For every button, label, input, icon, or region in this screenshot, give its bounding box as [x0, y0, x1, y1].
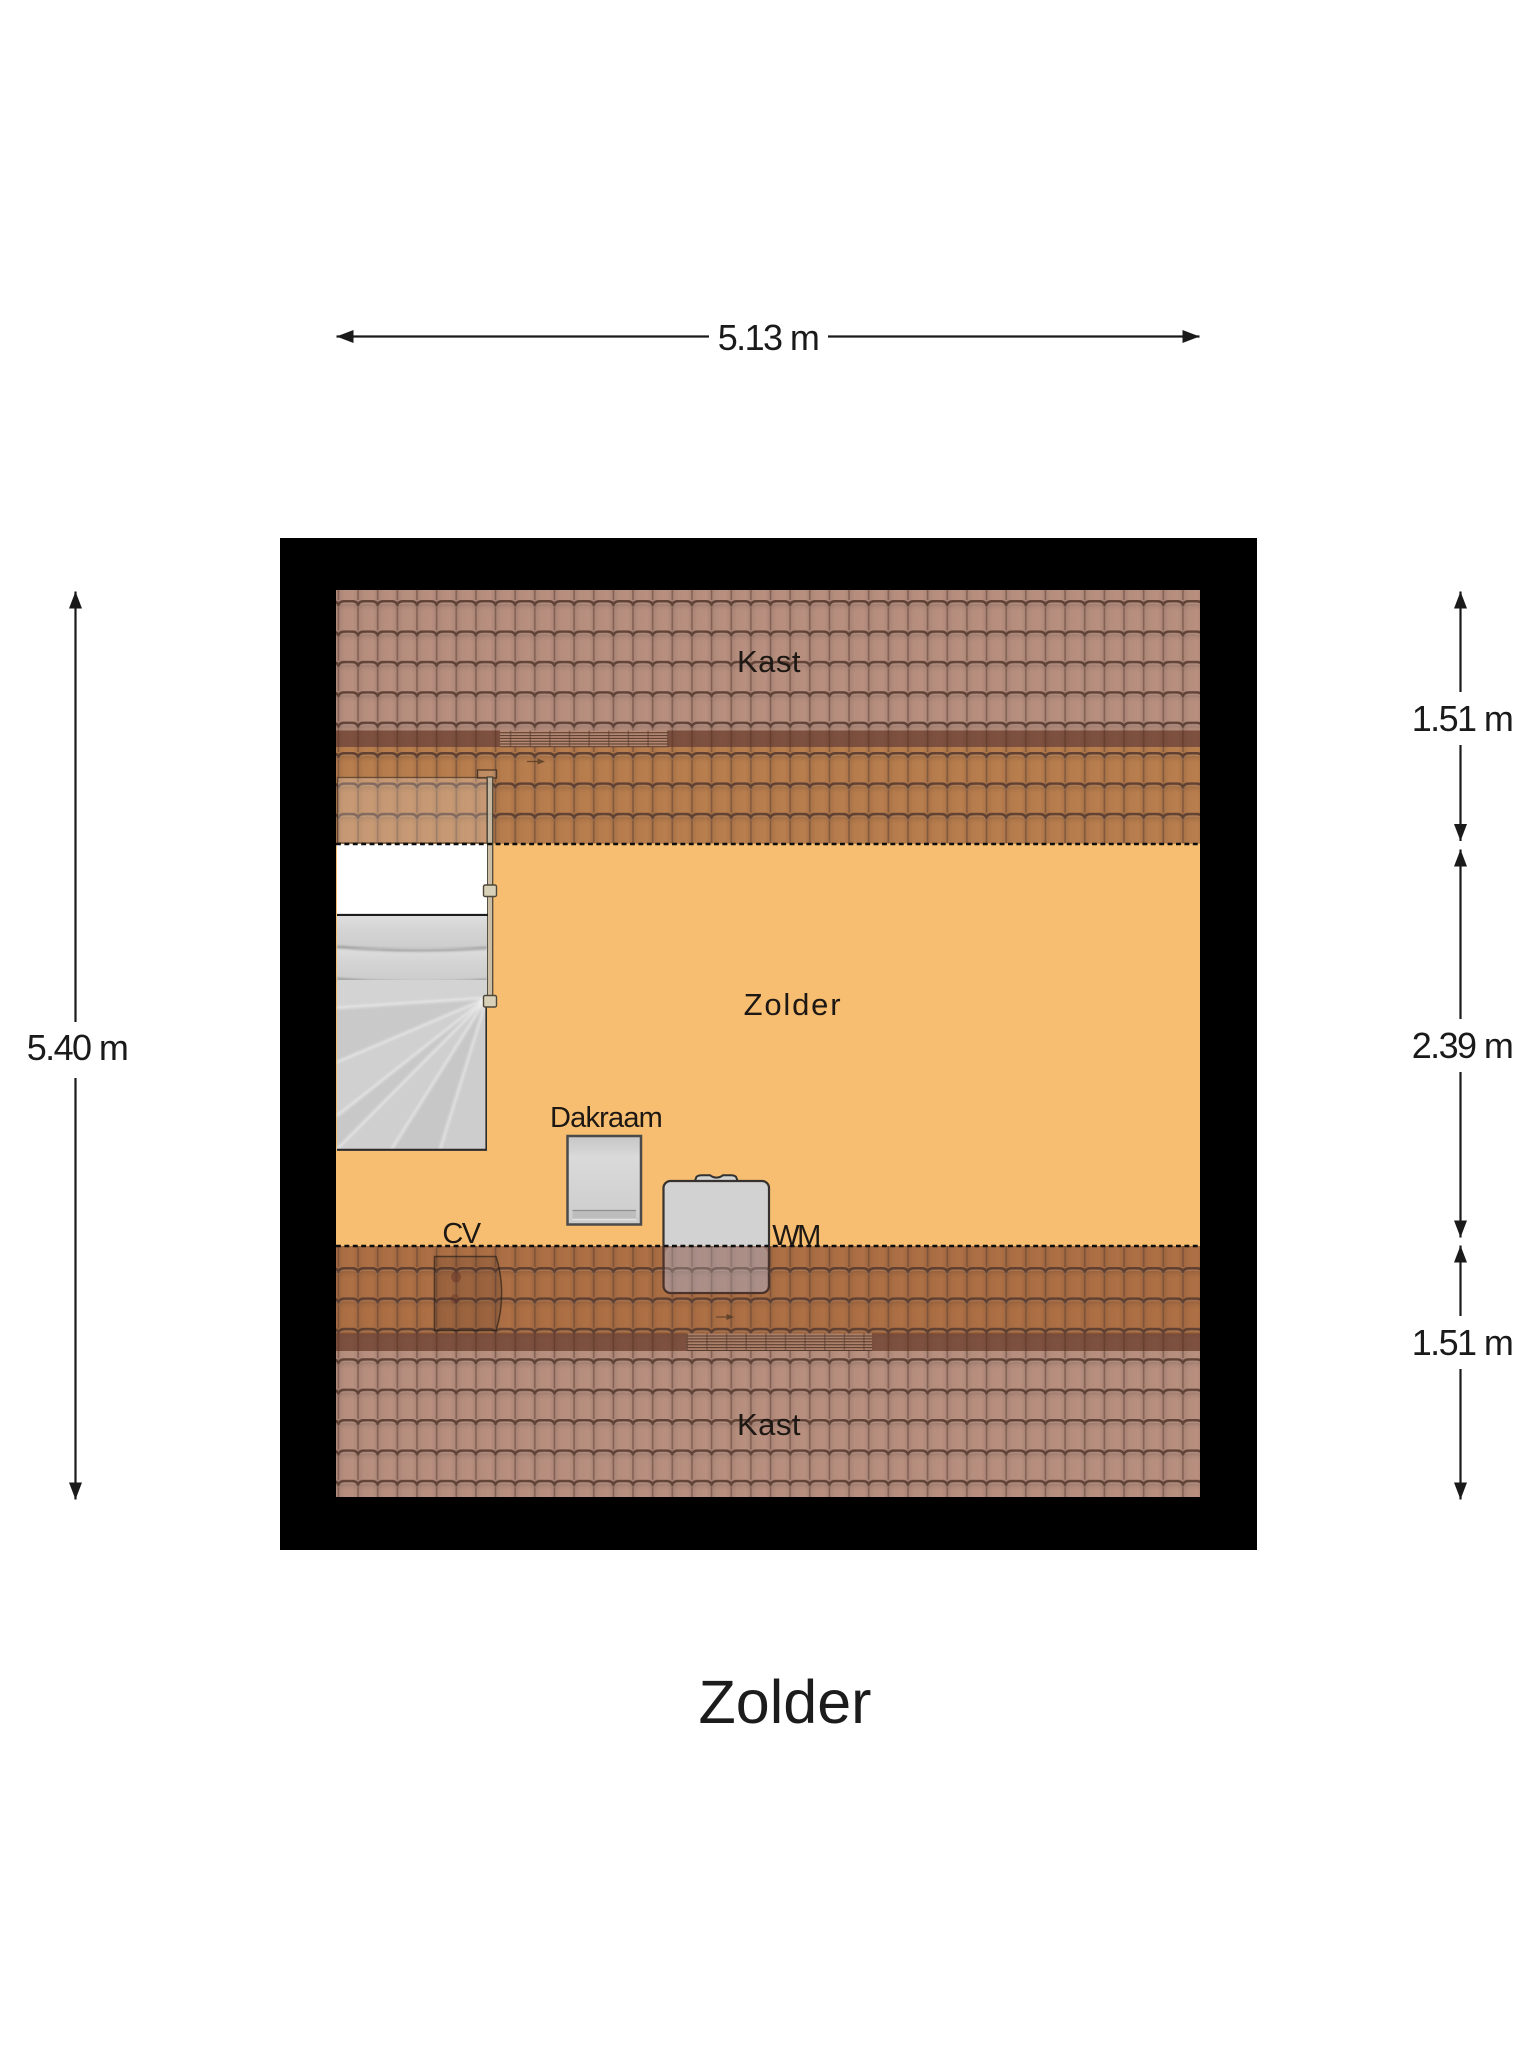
svg-text:Kast: Kast	[737, 1407, 801, 1442]
svg-text:Zolder: Zolder	[744, 987, 843, 1022]
svg-text:WM: WM	[772, 1220, 819, 1252]
svg-text:CV: CV	[442, 1218, 481, 1250]
svg-text:1.51 m: 1.51 m	[1412, 1322, 1512, 1363]
svg-text:2.39 m: 2.39 m	[1412, 1025, 1512, 1066]
svg-text:5.13 m: 5.13 m	[718, 317, 818, 358]
svg-text:5.40 m: 5.40 m	[27, 1027, 127, 1068]
svg-text:1.51 m: 1.51 m	[1412, 698, 1512, 739]
svg-text:Zolder: Zolder	[699, 1668, 872, 1736]
svg-text:Kast: Kast	[737, 644, 801, 679]
svg-text:Dakraam: Dakraam	[550, 1102, 662, 1134]
